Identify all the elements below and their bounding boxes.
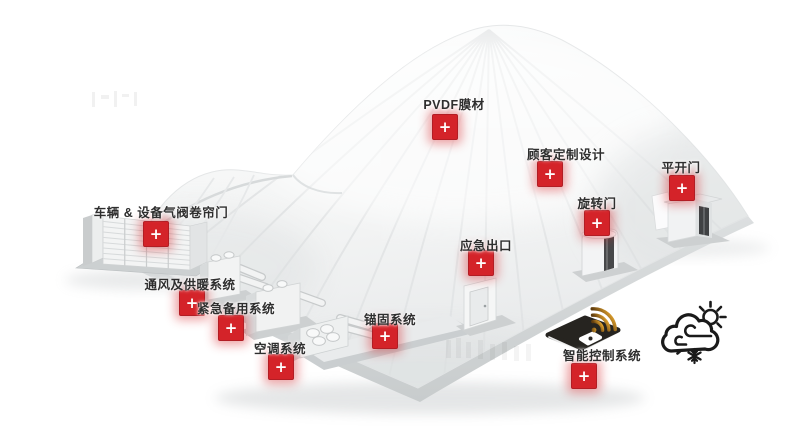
hotspot-marker-swing-door[interactable]: + [669, 175, 695, 201]
hotspot-marker-pvdf-membrane[interactable]: + [432, 114, 458, 140]
hotspot-label-emergency-backup: 紧急备用系统 [197, 298, 275, 317]
plus-icon: + [578, 369, 591, 384]
hotspot-label-vehicle-rolling-door: 车辆 & 设备气阀卷帘门 [94, 202, 228, 221]
hotspot-marker-smart-control[interactable]: + [571, 363, 597, 389]
hotspot-marker-vehicle-rolling-door[interactable]: + [143, 221, 169, 247]
plus-icon: + [544, 167, 557, 182]
hotspot-label-emergency-exit: 应急出口 [460, 235, 512, 254]
hotspot-marker-custom-design[interactable]: + [537, 161, 563, 187]
plus-icon: + [275, 360, 288, 375]
air-dome-feature-diagram: PVDF膜材+顾客定制设计+平开门+旋转门+应急出口+车辆 & 设备气阀卷帘门+… [0, 0, 800, 426]
hotspot-marker-ac-system[interactable]: + [268, 354, 294, 380]
hotspot-label-anchor-system: 锚固系统 [364, 309, 416, 328]
plus-icon: + [439, 120, 452, 135]
weather-cloud-sun-wind-snow-icon [663, 302, 726, 363]
hotspot-label-revolving-door: 旋转门 [577, 193, 616, 212]
cloud-icon [663, 315, 718, 351]
plus-icon: + [225, 321, 238, 336]
hotspot-label-smart-control: 智能控制系统 [563, 345, 641, 364]
hotspot-label-ventilation-heating: 通风及供暖系统 [144, 274, 235, 293]
hotspot-label-custom-design: 顾客定制设计 [527, 144, 605, 163]
hotspot-label-swing-door: 平开门 [661, 157, 700, 176]
plus-icon: + [379, 329, 392, 344]
plus-icon: + [150, 227, 163, 242]
hotspot-marker-revolving-door[interactable]: + [584, 210, 610, 236]
plus-icon: + [475, 256, 488, 271]
hotspot-label-pvdf-membrane: PVDF膜材 [423, 94, 484, 113]
hotspot-marker-emergency-backup[interactable]: + [218, 315, 244, 341]
plus-icon: + [591, 216, 604, 231]
plus-icon: + [676, 181, 689, 196]
hotspot-label-ac-system: 空调系统 [254, 338, 306, 357]
